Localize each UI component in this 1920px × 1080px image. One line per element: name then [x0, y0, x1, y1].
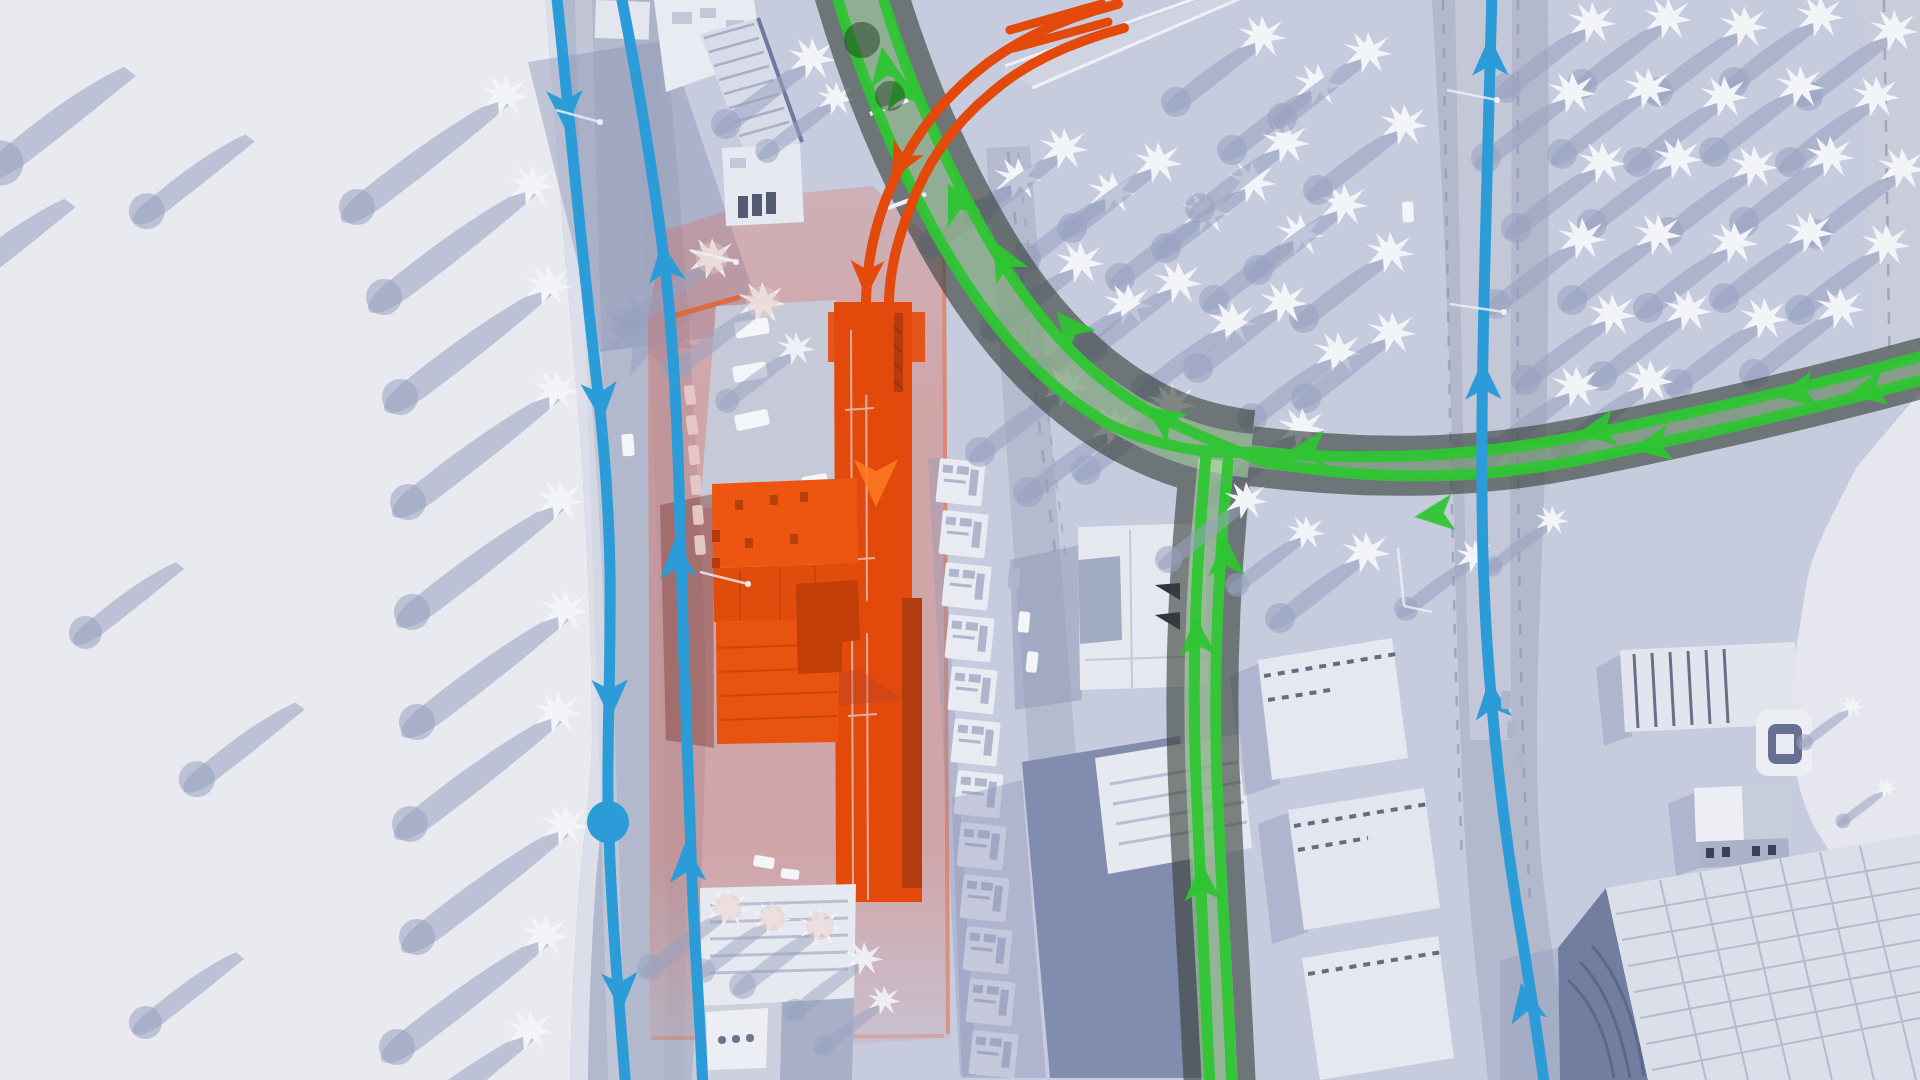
game-map-viewport[interactable]	[0, 0, 1920, 1080]
blue-stop-node[interactable]	[587, 801, 629, 843]
